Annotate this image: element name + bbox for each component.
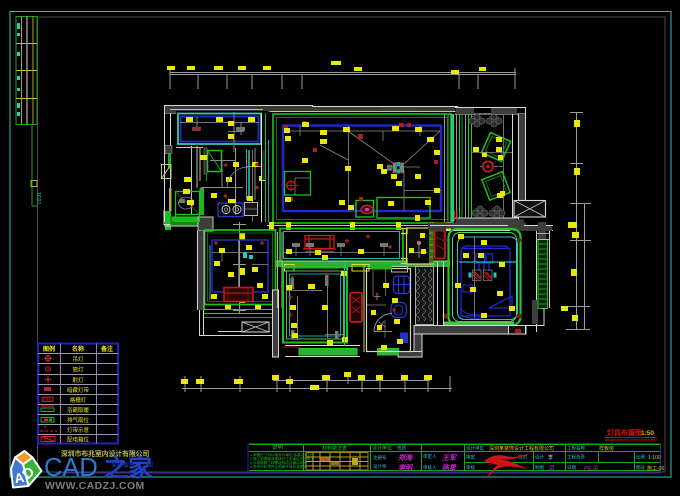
svg-text:设计单位: 设计单位 <box>466 445 484 452</box>
svg-text:之家: 之家 <box>104 454 152 482</box>
svg-text:材料做法表: 材料做法表 <box>322 445 347 452</box>
svg-text:工程名称: 工程名称 <box>567 445 585 452</box>
svg-text:吊灯: 吊灯 <box>72 355 84 363</box>
svg-text:样板房: 样板房 <box>599 445 614 452</box>
svg-text:比例: 比例 <box>636 454 645 461</box>
svg-text:施工-06: 施工-06 <box>647 465 664 472</box>
svg-text:CAD: CAD <box>44 454 98 482</box>
svg-text:制图: 制图 <box>535 464 544 471</box>
svg-text:1:100: 1:100 <box>648 455 661 461</box>
svg-text:王军: 王军 <box>442 454 458 462</box>
svg-text:资质: 资质 <box>397 445 406 452</box>
svg-text:1:50: 1:50 <box>641 430 654 437</box>
svg-text:P6.凤: P6.凤 <box>584 465 598 472</box>
svg-text:深圳某装饰设计工程有限公司: 深圳某装饰设计工程有限公司 <box>489 445 554 452</box>
svg-text:审定人: 审定人 <box>423 453 437 460</box>
svg-text:审定: 审定 <box>466 454 475 461</box>
svg-text:浴霸取暖: 浴霸取暖 <box>67 406 90 414</box>
svg-text:名称: 名称 <box>72 345 84 353</box>
svg-text:工程负责: 工程负责 <box>567 454 585 461</box>
svg-text:设计师: 设计师 <box>373 463 387 470</box>
svg-text:配电箱位: 配电箱位 <box>67 436 90 444</box>
svg-text:设计单位: 设计单位 <box>372 445 392 452</box>
svg-text:灯具布置图: 灯具布置图 <box>607 428 642 437</box>
svg-text:4.所有材料须符合国家环保标准要求: 4.所有材料须符合国家环保标准要求 <box>250 464 307 469</box>
svg-text:凤: 凤 <box>548 465 555 472</box>
svg-text:陈星: 陈星 <box>442 463 457 472</box>
svg-text:暗藏灯带: 暗藏灯带 <box>67 386 90 394</box>
svg-text:排气扇位: 排气扇位 <box>67 416 90 424</box>
svg-text:设计: 设计 <box>535 454 544 461</box>
svg-text:射灯: 射灯 <box>72 376 84 384</box>
svg-text:格栅灯: 格栅灯 <box>70 396 87 404</box>
svg-text:1F01: 1F01 <box>35 192 41 205</box>
svg-text:郑海: 郑海 <box>397 453 414 462</box>
svg-text:筒灯: 筒灯 <box>72 366 84 374</box>
svg-text:备注: 备注 <box>100 345 113 353</box>
svg-text:说明: 说明 <box>272 443 284 451</box>
svg-text:李: 李 <box>548 454 553 461</box>
svg-text:WWW.CADZJ.COM: WWW.CADZJ.COM <box>45 480 145 492</box>
svg-text:审核人: 审核人 <box>423 464 437 471</box>
svg-text:审核: 审核 <box>466 464 475 471</box>
svg-text:灯带示意: 灯带示意 <box>67 426 90 434</box>
svg-text:注册号: 注册号 <box>373 454 387 461</box>
svg-text:李明: 李明 <box>398 463 414 472</box>
svg-text:图例: 图例 <box>43 345 55 353</box>
